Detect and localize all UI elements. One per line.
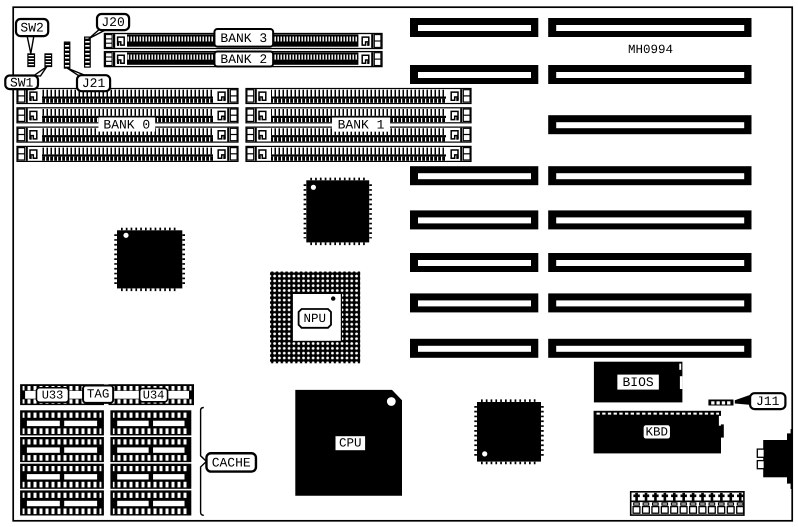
svg-text:KBD: KBD bbox=[646, 425, 669, 439]
svg-text:SW2: SW2 bbox=[20, 21, 43, 36]
svg-text:BANK 0: BANK 0 bbox=[103, 118, 150, 133]
svg-text:U34: U34 bbox=[143, 389, 165, 403]
svg-text:J21: J21 bbox=[82, 76, 106, 91]
svg-text:BIOS: BIOS bbox=[622, 375, 653, 390]
svg-text:BANK 1: BANK 1 bbox=[338, 118, 385, 133]
svg-text:NPU: NPU bbox=[304, 312, 327, 326]
svg-text:TAG: TAG bbox=[87, 388, 110, 402]
svg-text:CACHE: CACHE bbox=[212, 455, 251, 470]
svg-text:U33: U33 bbox=[42, 389, 64, 403]
svg-text:MH0994: MH0994 bbox=[628, 43, 673, 57]
svg-text:CPU: CPU bbox=[339, 437, 362, 451]
svg-text:J20: J20 bbox=[101, 15, 124, 30]
svg-text:J11: J11 bbox=[756, 394, 780, 409]
svg-text:SW1: SW1 bbox=[10, 75, 34, 90]
svg-text:BANK 2: BANK 2 bbox=[220, 52, 267, 67]
svg-text:BANK 3: BANK 3 bbox=[220, 31, 267, 46]
